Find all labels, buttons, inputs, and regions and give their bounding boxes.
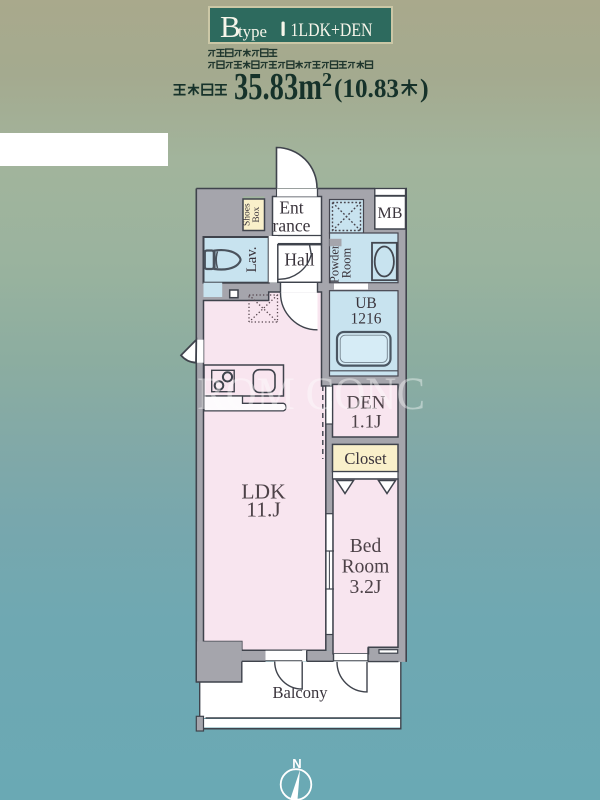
svg-text:Box: Box — [252, 207, 262, 223]
svg-text:Bed: Bed — [350, 536, 382, 557]
svg-text:(10.83: (10.83 — [334, 74, 399, 103]
svg-text:Room: Room — [340, 247, 354, 278]
svg-text:Lav.: Lav. — [244, 246, 260, 272]
svg-text:2: 2 — [322, 69, 332, 91]
svg-text:35.83m: 35.83m — [234, 66, 322, 108]
svg-text:UB: UB — [355, 295, 377, 312]
svg-text:1LDK+DEN: 1LDK+DEN — [291, 20, 373, 41]
svg-text:Shoes: Shoes — [243, 203, 253, 226]
svg-text:Ent: Ent — [279, 198, 303, 218]
svg-text:Closet: Closet — [344, 449, 387, 468]
svg-text:1216: 1216 — [351, 311, 382, 328]
svg-text:Room: Room — [342, 557, 390, 578]
svg-text:): ) — [420, 74, 429, 103]
svg-text:11.J: 11.J — [246, 498, 280, 522]
svg-text:ROM CONC: ROM CONC — [197, 368, 425, 420]
svg-text:MB: MB — [378, 205, 403, 222]
svg-text:3.2J: 3.2J — [350, 577, 382, 598]
svg-text:rance: rance — [273, 216, 311, 236]
svg-text:type: type — [238, 22, 267, 41]
